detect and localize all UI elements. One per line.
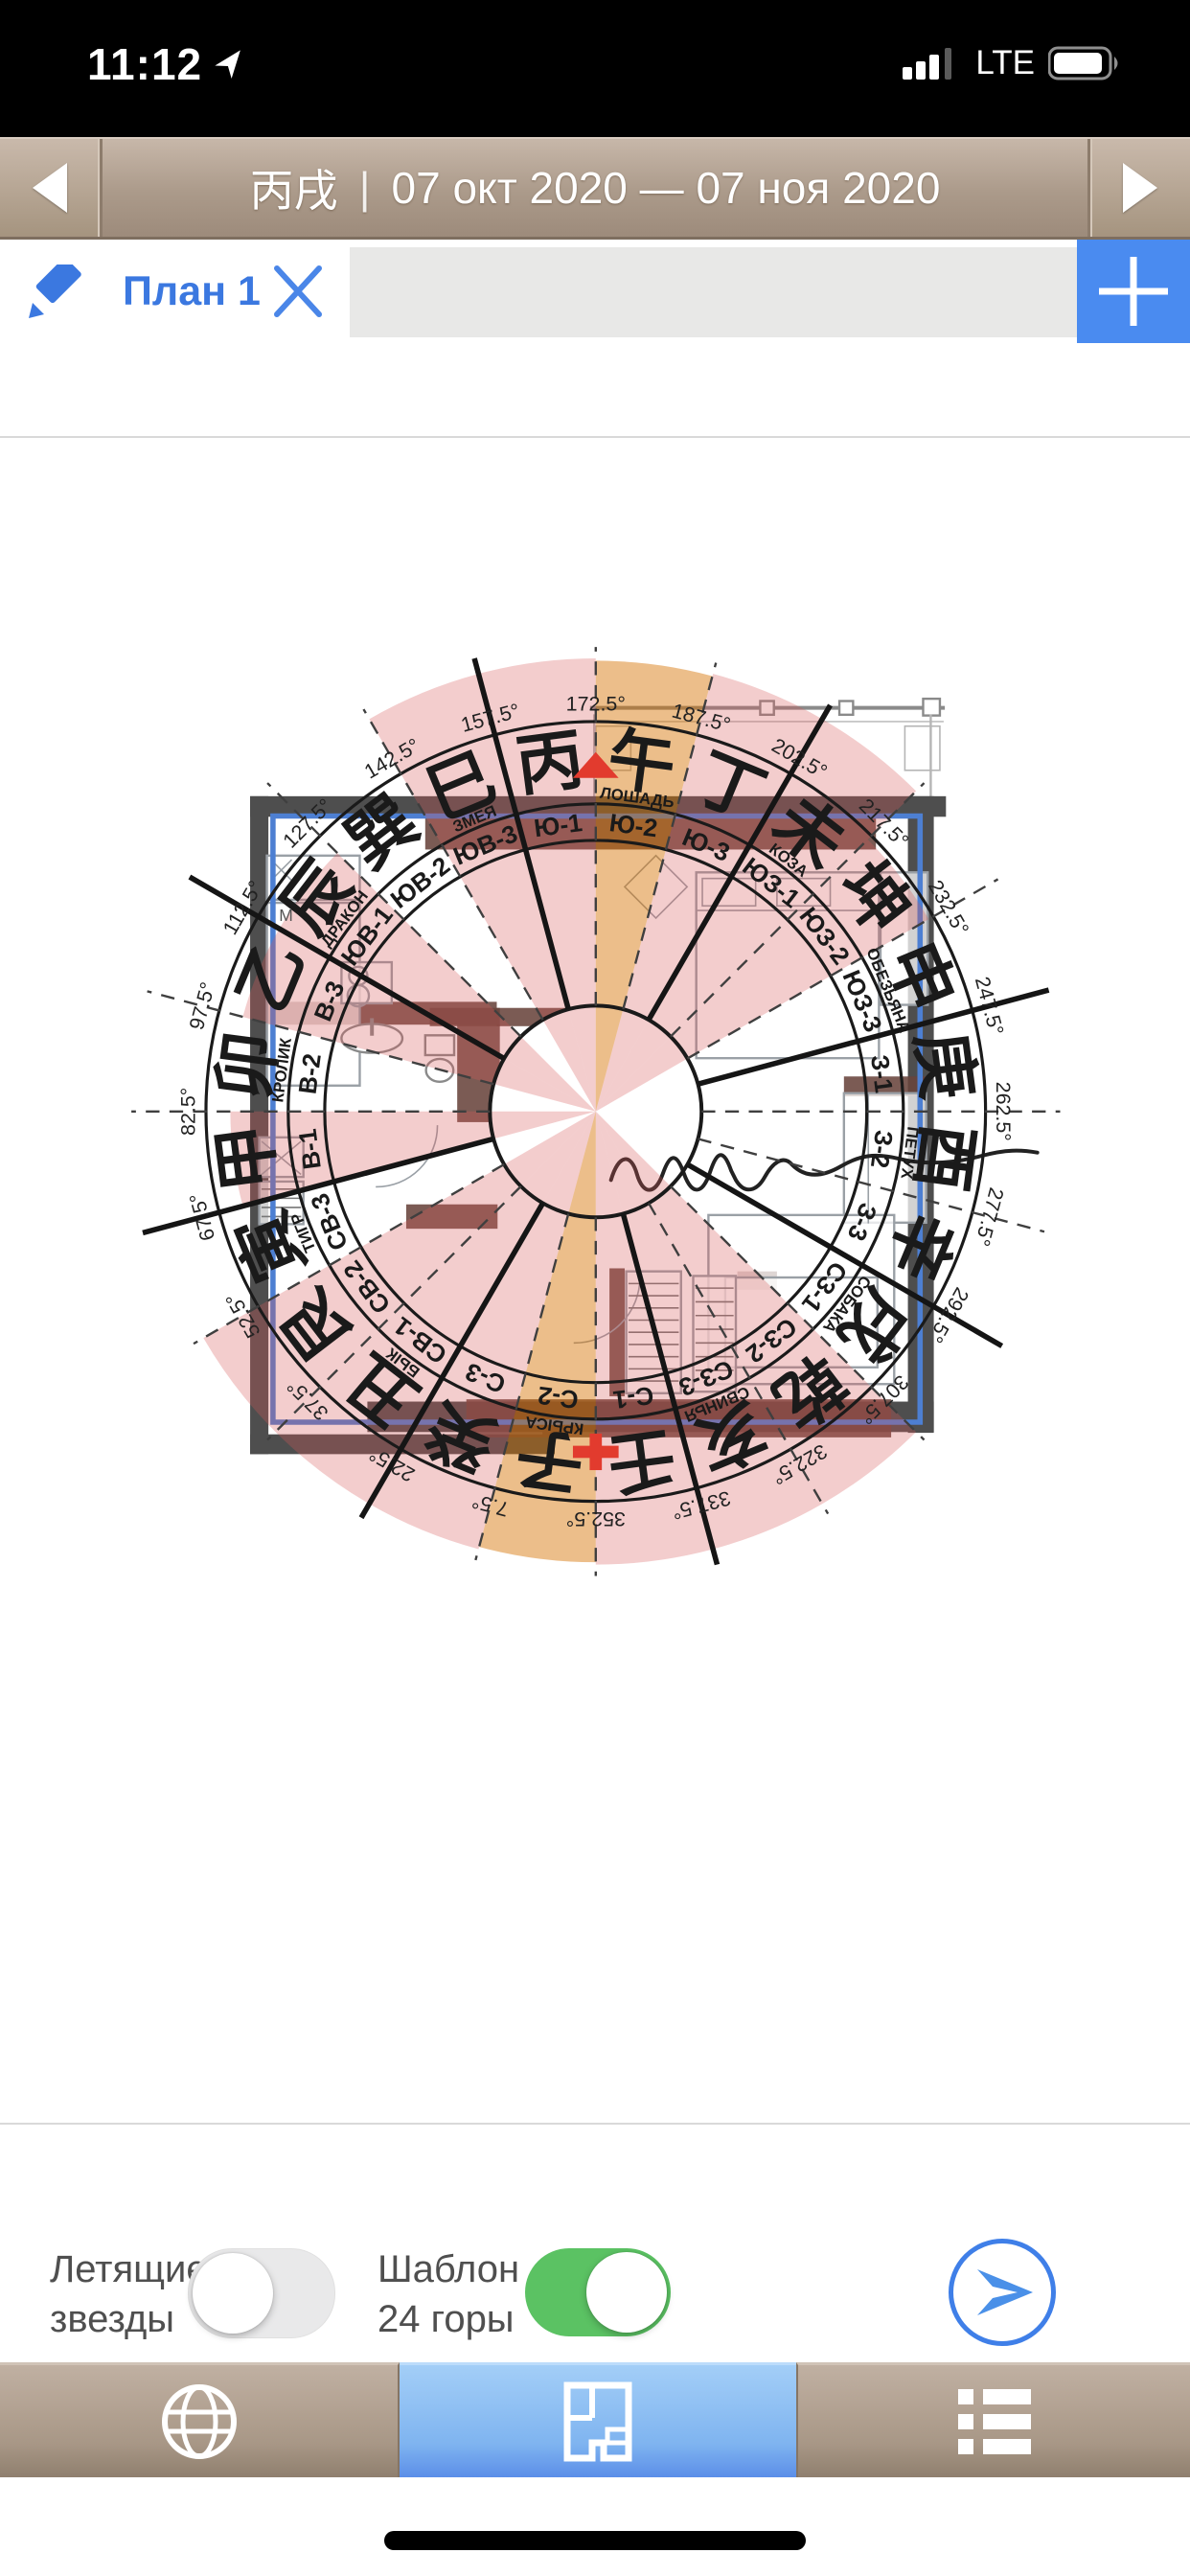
sector-label-З-1: З-1 (865, 1053, 899, 1094)
app-screen: 11:12 LTE 丙戌 | 07 окт 2020 — 07 ноя 2020 (0, 0, 1190, 2576)
prev-period-button[interactable] (0, 139, 103, 237)
list-icon (954, 2381, 1035, 2462)
plus-icon (1095, 253, 1172, 330)
sector-label-З-2: З-2 (865, 1128, 899, 1169)
sector-label-В-2: В-2 (293, 1052, 327, 1096)
tabstrip-empty-area (350, 247, 1077, 337)
sitting-marker-cross (589, 1434, 602, 1470)
period-title: 丙戌 | 07 окт 2020 — 07 ноя 2020 (0, 139, 1190, 237)
template-24-label: Шаблон 24 горы (378, 2244, 519, 2344)
mountain-char-Ю-1: 丙 (512, 722, 587, 804)
status-right-cluster: LTE (903, 44, 1123, 82)
degree-label: 262.5° (992, 1082, 1015, 1141)
edit-pencil-icon[interactable] (27, 264, 82, 320)
nav-floorplan-button[interactable] (400, 2362, 796, 2477)
location-arrow-icon (215, 46, 247, 79)
flying-stars-label: Летящие звезды (50, 2244, 208, 2344)
next-arrow-icon (1123, 163, 1157, 213)
paper-plane-icon (968, 2264, 1037, 2321)
prev-arrow-icon (33, 163, 67, 213)
mountain-char-З-1: 庚 (903, 1027, 985, 1104)
sector-label-С-2: С-2 (537, 1381, 581, 1414)
signal-strength-icon (903, 44, 962, 82)
nav-list-button[interactable] (796, 2362, 1190, 2477)
month-pillar: 丙戌 (250, 156, 338, 219)
period-header: 丙戌 | 07 окт 2020 — 07 ноя 2020 (0, 137, 1190, 240)
clock: 11:12 (87, 38, 202, 90)
nav-globe-button[interactable] (0, 2362, 400, 2477)
degree-label: 352.5° (566, 1507, 626, 1530)
mountain-char-С-1: 壬 (604, 1418, 679, 1501)
share-button[interactable] (949, 2239, 1056, 2346)
close-tab-icon[interactable] (271, 264, 325, 318)
add-plan-button[interactable] (1077, 240, 1190, 343)
tab-plan-1[interactable]: План 1 (0, 240, 350, 343)
mountain-char-В-1: 甲 (206, 1119, 288, 1195)
next-period-button[interactable] (1087, 139, 1190, 237)
floorplan-icon (560, 2380, 636, 2464)
plan-room-letter: М (279, 906, 293, 925)
status-bar: 11:12 LTE (0, 0, 1190, 137)
sector-label-В-1: В-1 (293, 1127, 327, 1171)
date-range: 07 окт 2020 — 07 ноя 2020 (392, 162, 941, 214)
tab-title: План 1 (123, 240, 261, 343)
bottom-nav-bar (0, 2362, 1190, 2477)
network-type: LTE (975, 44, 1035, 82)
plan-tabstrip: План 1 (0, 240, 1190, 343)
home-indicator[interactable] (384, 2531, 806, 2550)
flying-stars-toggle[interactable] (188, 2248, 335, 2338)
battery-icon (1048, 44, 1123, 82)
title-divider: | (359, 162, 371, 214)
toggle-knob (193, 2253, 273, 2334)
globe-icon (159, 2381, 240, 2462)
degree-label: 172.5° (566, 693, 626, 716)
separator-bottom (0, 2123, 1190, 2125)
degree-label: 82.5° (177, 1088, 200, 1136)
toggle-knob (586, 2252, 667, 2333)
template-24-toggle[interactable] (525, 2248, 671, 2336)
sector-label-С-1: С-1 (611, 1381, 655, 1414)
plan-canvas[interactable]: 巳ЮВ-3ЗМЕЯ142.5°丙Ю-1157.5°午Ю-2ЛОШАДЬ172.5… (0, 436, 1190, 2123)
